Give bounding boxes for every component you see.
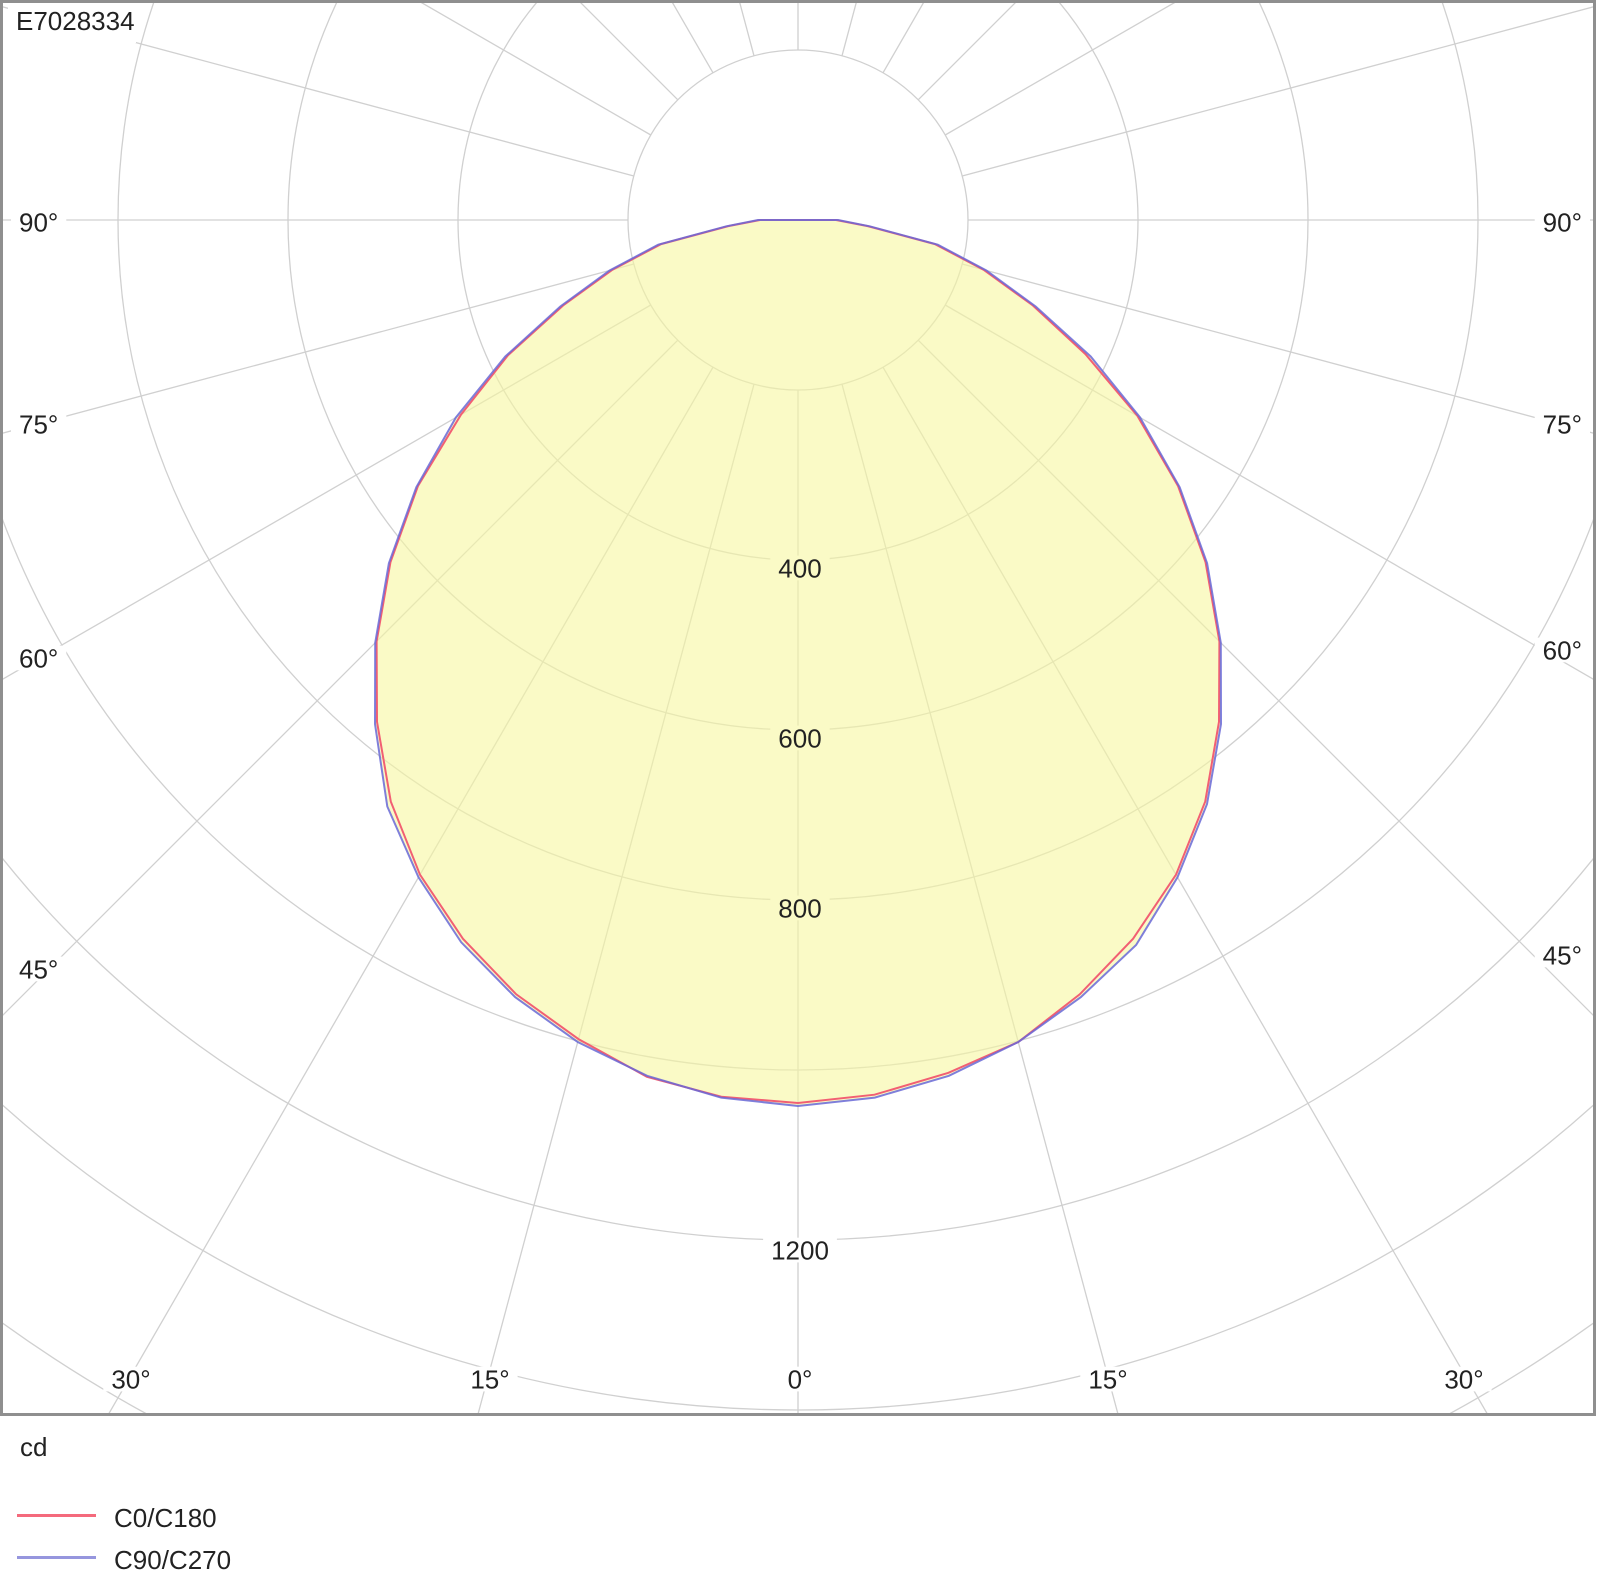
svg-text:1200: 1200	[771, 1235, 829, 1265]
svg-text:90°: 90°	[1543, 207, 1582, 237]
svg-text:45°: 45°	[1543, 940, 1582, 970]
svg-text:60°: 60°	[1543, 635, 1582, 665]
svg-text:15°: 15°	[470, 1364, 509, 1394]
svg-text:C0/C180: C0/C180	[114, 1503, 217, 1533]
svg-text:800: 800	[778, 893, 821, 923]
svg-text:C90/C270: C90/C270	[114, 1545, 231, 1575]
svg-text:600: 600	[778, 723, 821, 753]
svg-text:30°: 30°	[111, 1364, 150, 1394]
svg-text:cd: cd	[20, 1432, 47, 1462]
svg-text:0°: 0°	[788, 1364, 813, 1394]
svg-text:15°: 15°	[1088, 1364, 1127, 1394]
svg-text:75°: 75°	[1543, 409, 1582, 439]
svg-text:75°: 75°	[19, 409, 58, 439]
svg-text:45°: 45°	[19, 954, 58, 984]
svg-text:90°: 90°	[19, 207, 58, 237]
svg-text:E7028334: E7028334	[16, 6, 135, 36]
svg-text:400: 400	[778, 553, 821, 583]
svg-text:60°: 60°	[19, 643, 58, 673]
svg-text:30°: 30°	[1444, 1364, 1483, 1394]
